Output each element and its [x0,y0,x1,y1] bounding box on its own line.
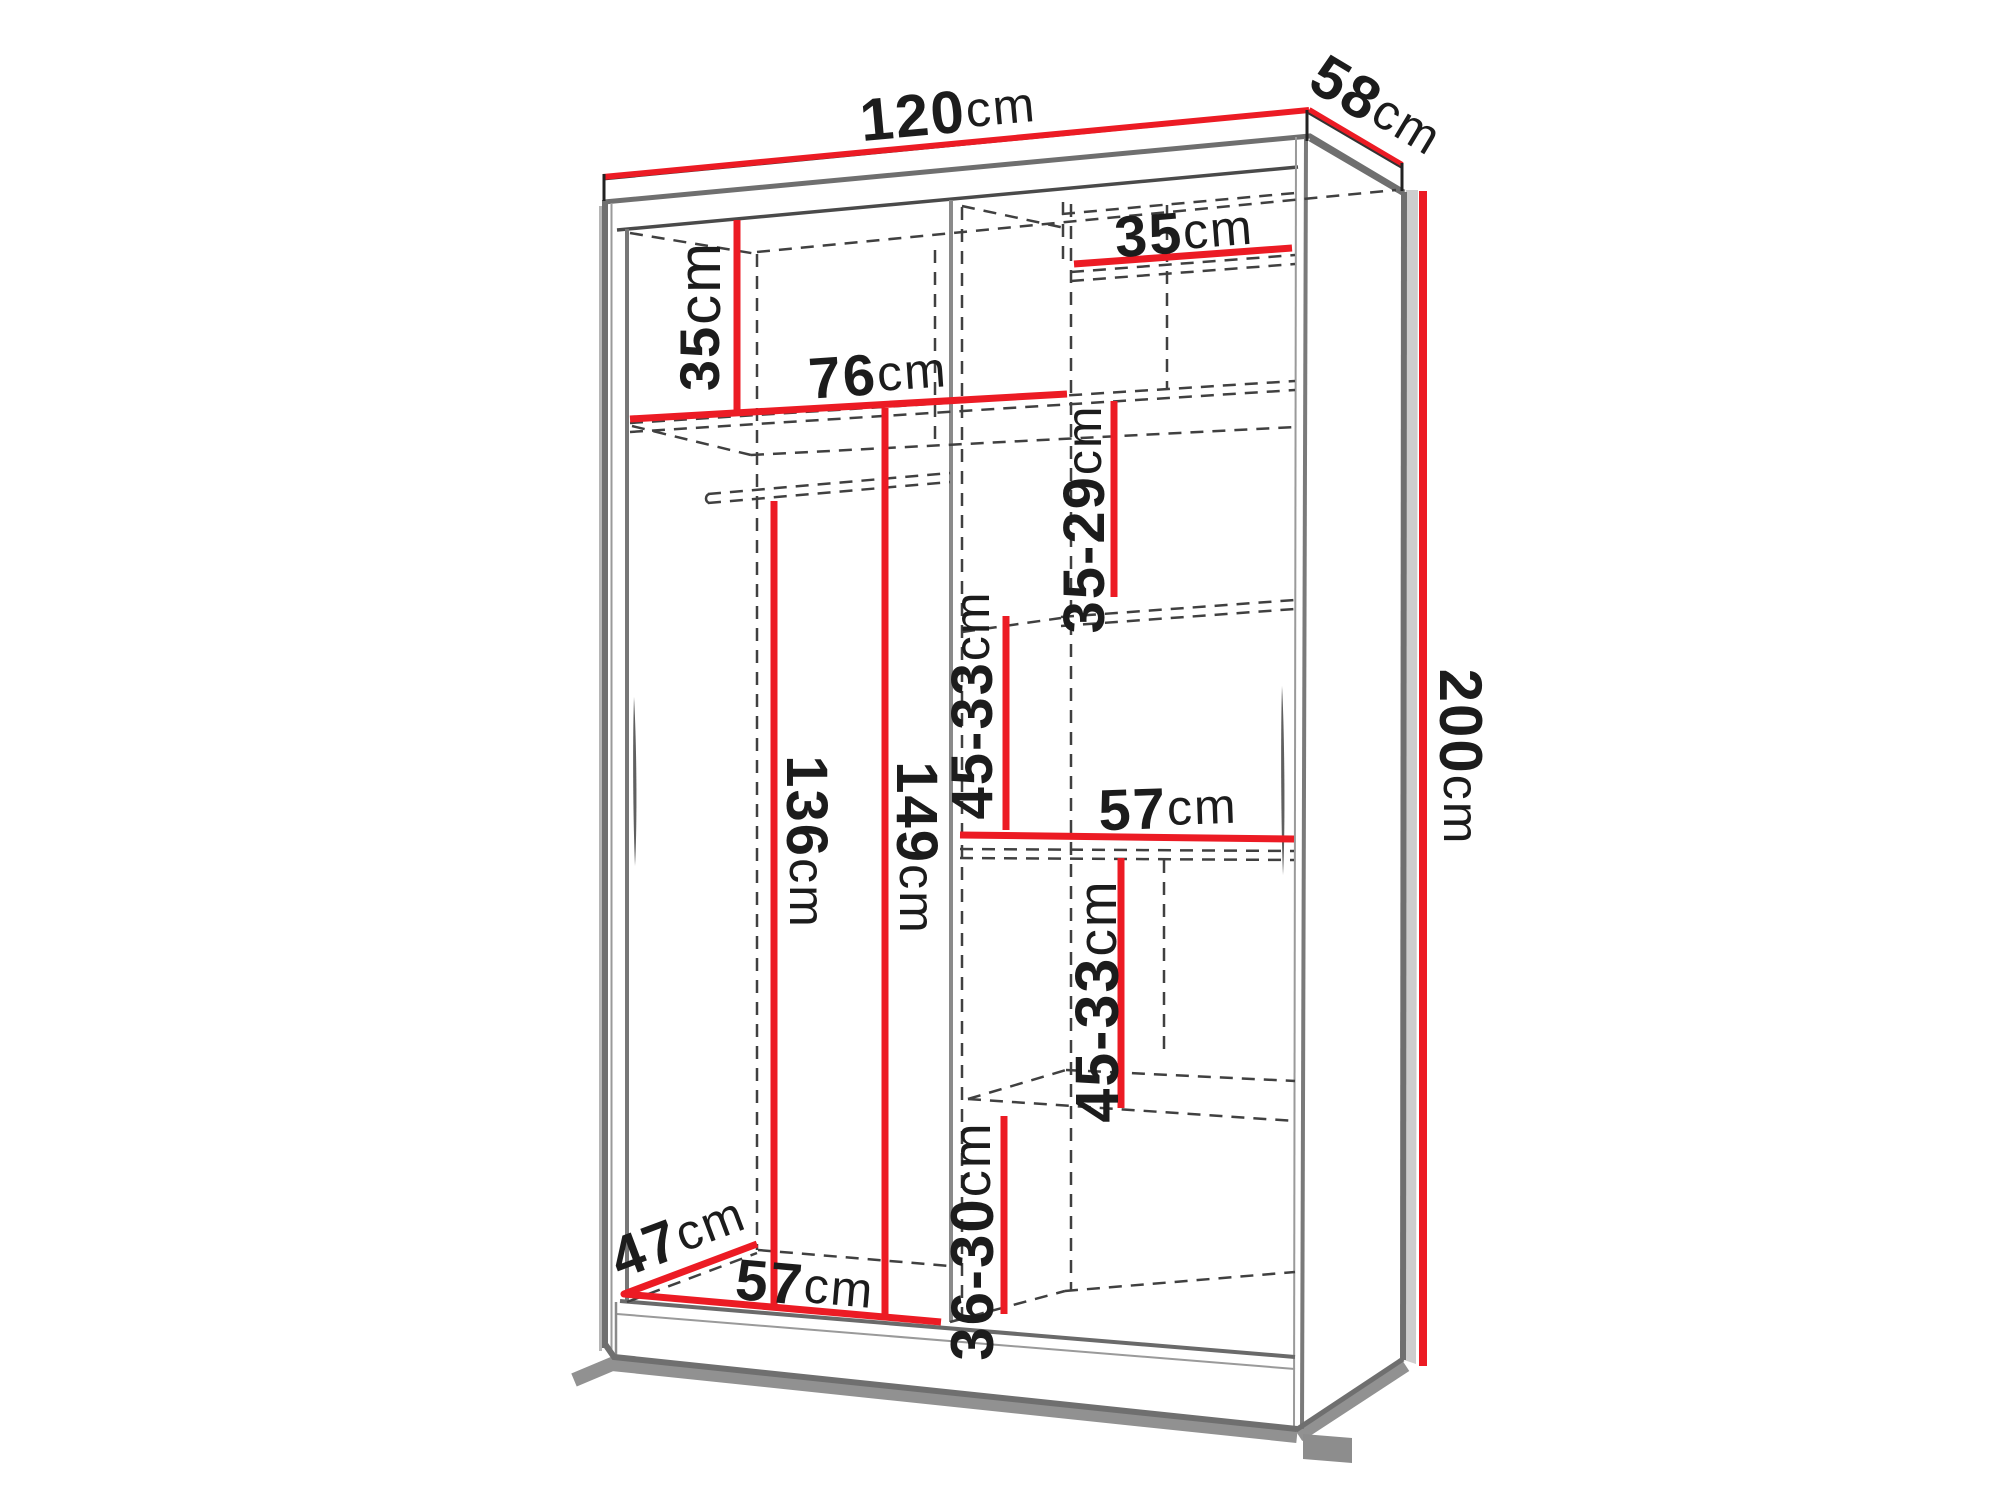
svg-text:36-30cm: 36-30cm [939,1121,1006,1360]
svg-text:45-33cm: 45-33cm [1063,879,1131,1122]
svg-text:57cm: 57cm [1097,773,1238,843]
svg-text:200cm: 200cm [1428,669,1495,846]
svg-text:35-29cm: 35-29cm [1052,405,1117,634]
svg-text:136cm: 136cm [775,755,840,928]
svg-text:149cm: 149cm [885,761,950,934]
svg-text:35cm: 35cm [666,241,733,391]
